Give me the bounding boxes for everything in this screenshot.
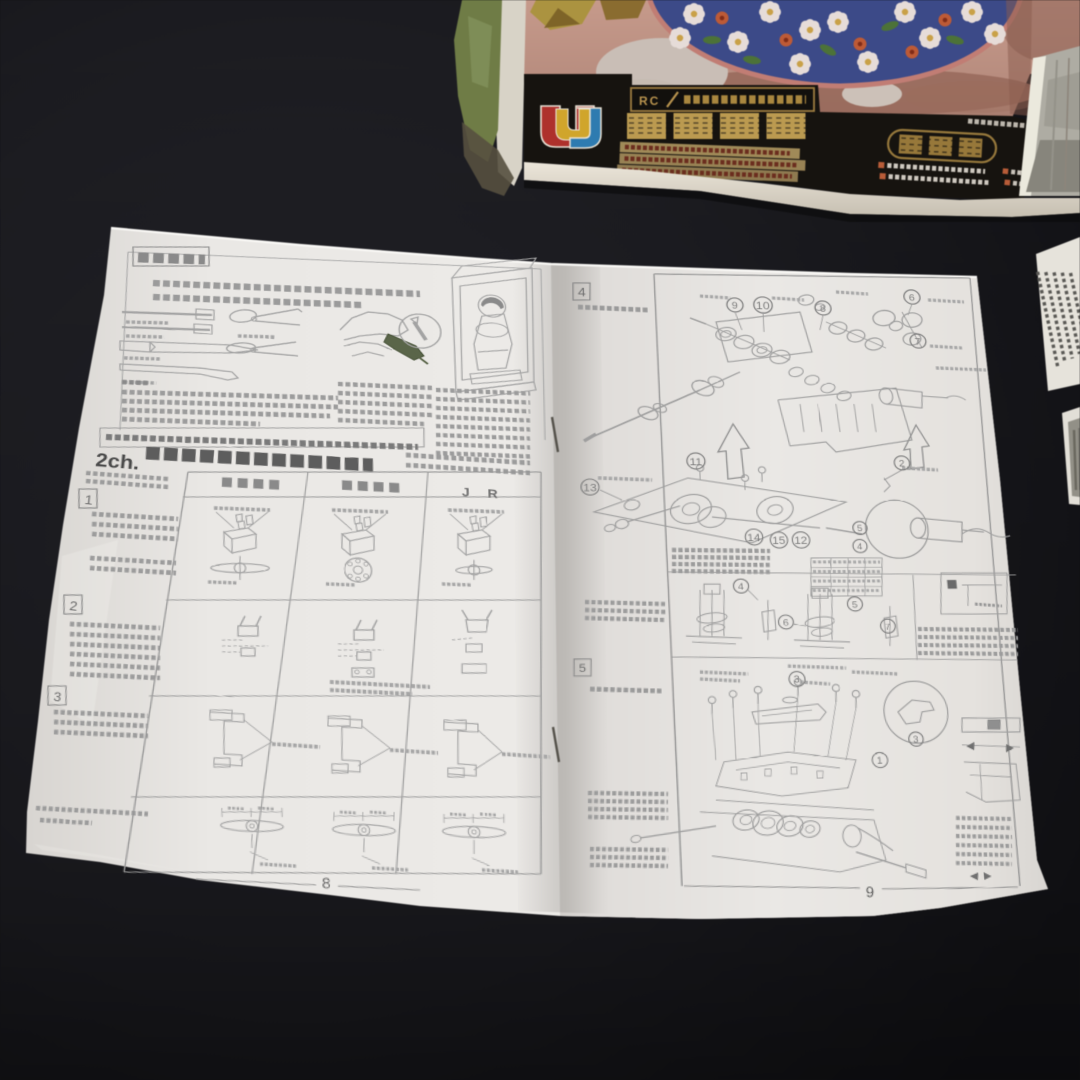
svg-text:5: 5: [852, 600, 858, 610]
svg-text:14: 14: [747, 532, 761, 544]
svg-text:8: 8: [819, 304, 826, 315]
svg-text:1: 1: [84, 492, 95, 508]
svg-text:RC: RC: [639, 94, 660, 108]
svg-text:9: 9: [866, 883, 875, 900]
svg-text:15: 15: [772, 535, 786, 547]
svg-text:4: 4: [738, 582, 744, 592]
svg-text:5: 5: [857, 524, 863, 534]
svg-text:8: 8: [322, 876, 331, 893]
svg-text:6: 6: [783, 617, 789, 627]
svg-text:6: 6: [908, 293, 915, 304]
svg-text:10: 10: [755, 299, 770, 312]
svg-text:9: 9: [731, 301, 738, 312]
svg-text:2ch.: 2ch.: [95, 449, 141, 474]
svg-text:3: 3: [793, 674, 800, 686]
svg-text:4: 4: [578, 285, 586, 299]
svg-text:2: 2: [69, 600, 79, 615]
svg-text:12: 12: [794, 535, 808, 547]
svg-text:7: 7: [884, 621, 890, 631]
svg-text:3: 3: [52, 690, 62, 705]
svg-text:2: 2: [898, 459, 905, 469]
svg-text:5: 5: [579, 662, 586, 675]
svg-text:1: 1: [876, 755, 883, 766]
svg-text:J R: J R: [462, 486, 505, 502]
svg-text:13: 13: [583, 482, 597, 494]
svg-text:4: 4: [857, 542, 863, 552]
svg-text:7: 7: [914, 337, 921, 348]
svg-text:3: 3: [913, 734, 919, 745]
svg-text:11: 11: [689, 456, 702, 468]
